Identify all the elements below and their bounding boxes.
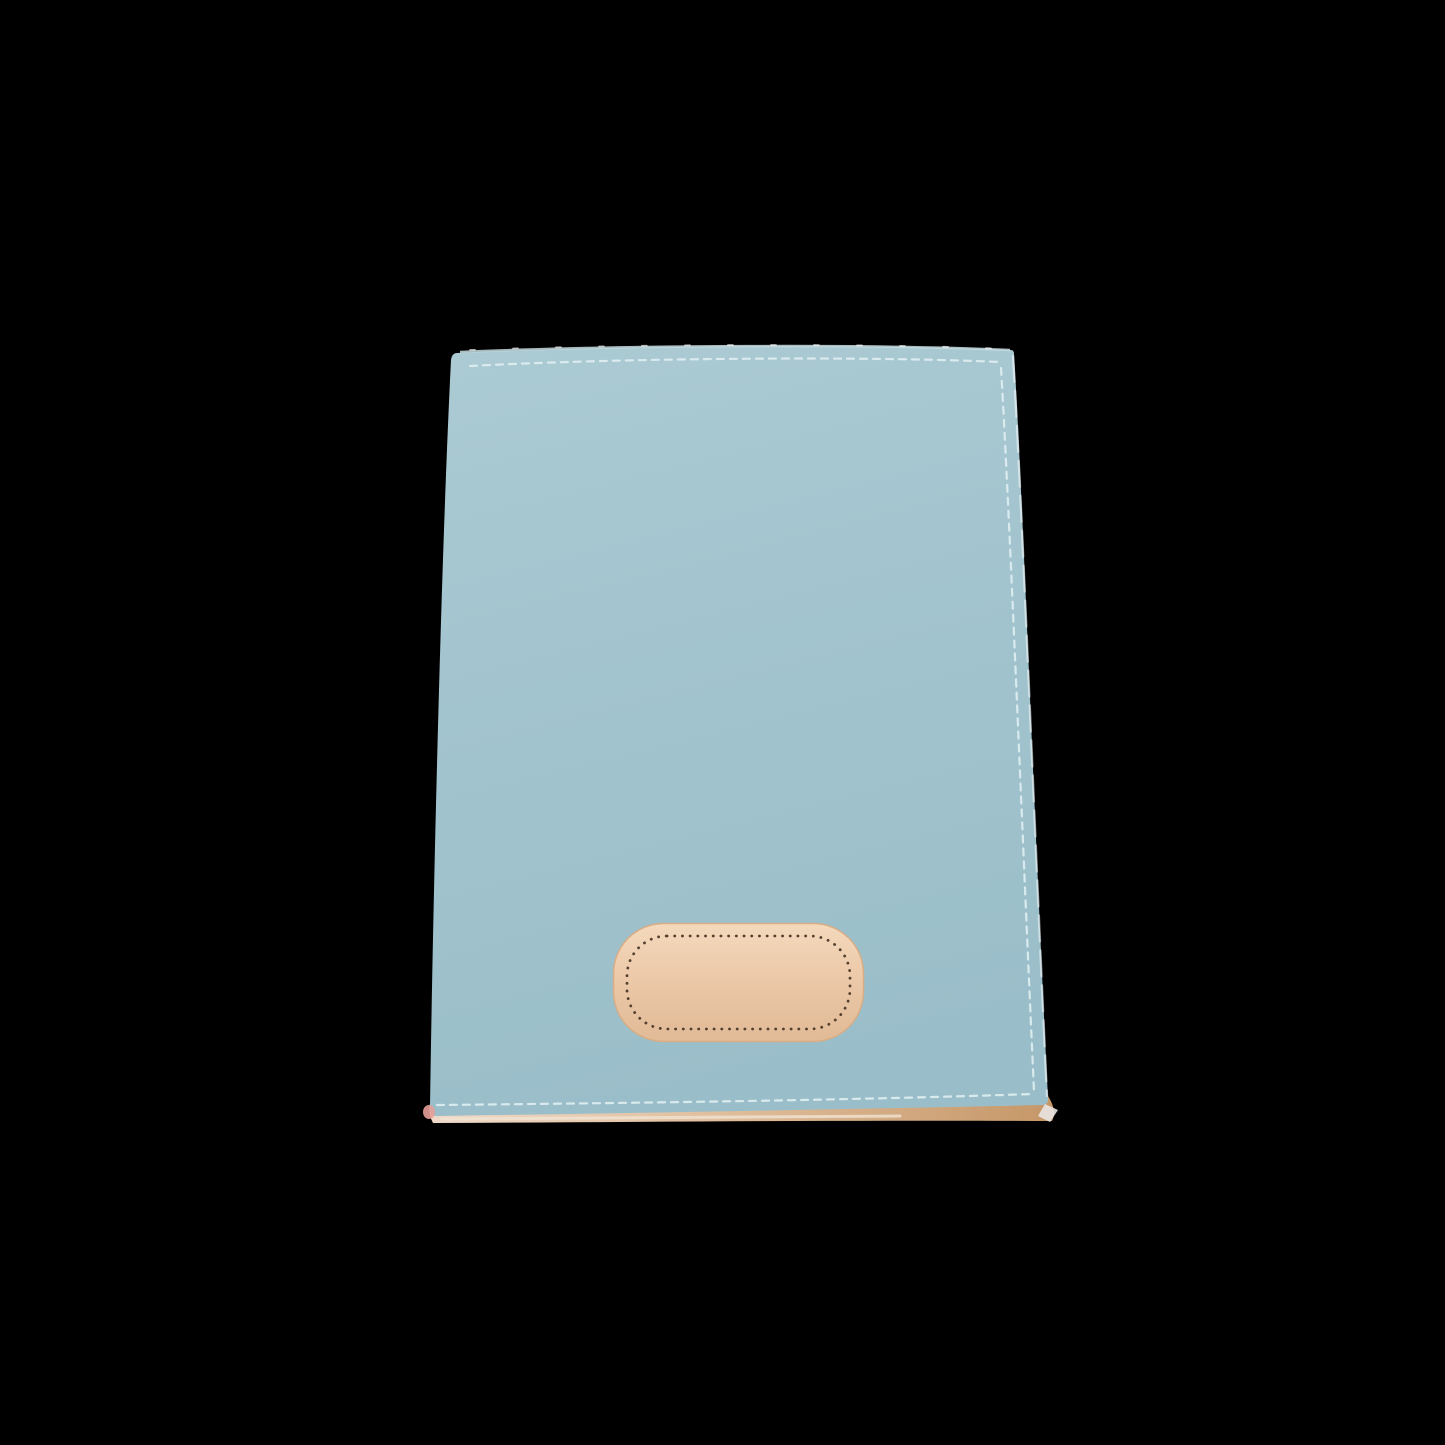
leather-patch [614, 924, 864, 1042]
folio-product-image [0, 0, 1445, 1445]
bottom-left-pink-accent [423, 1105, 435, 1119]
product-photo-stage [0, 0, 1445, 1445]
